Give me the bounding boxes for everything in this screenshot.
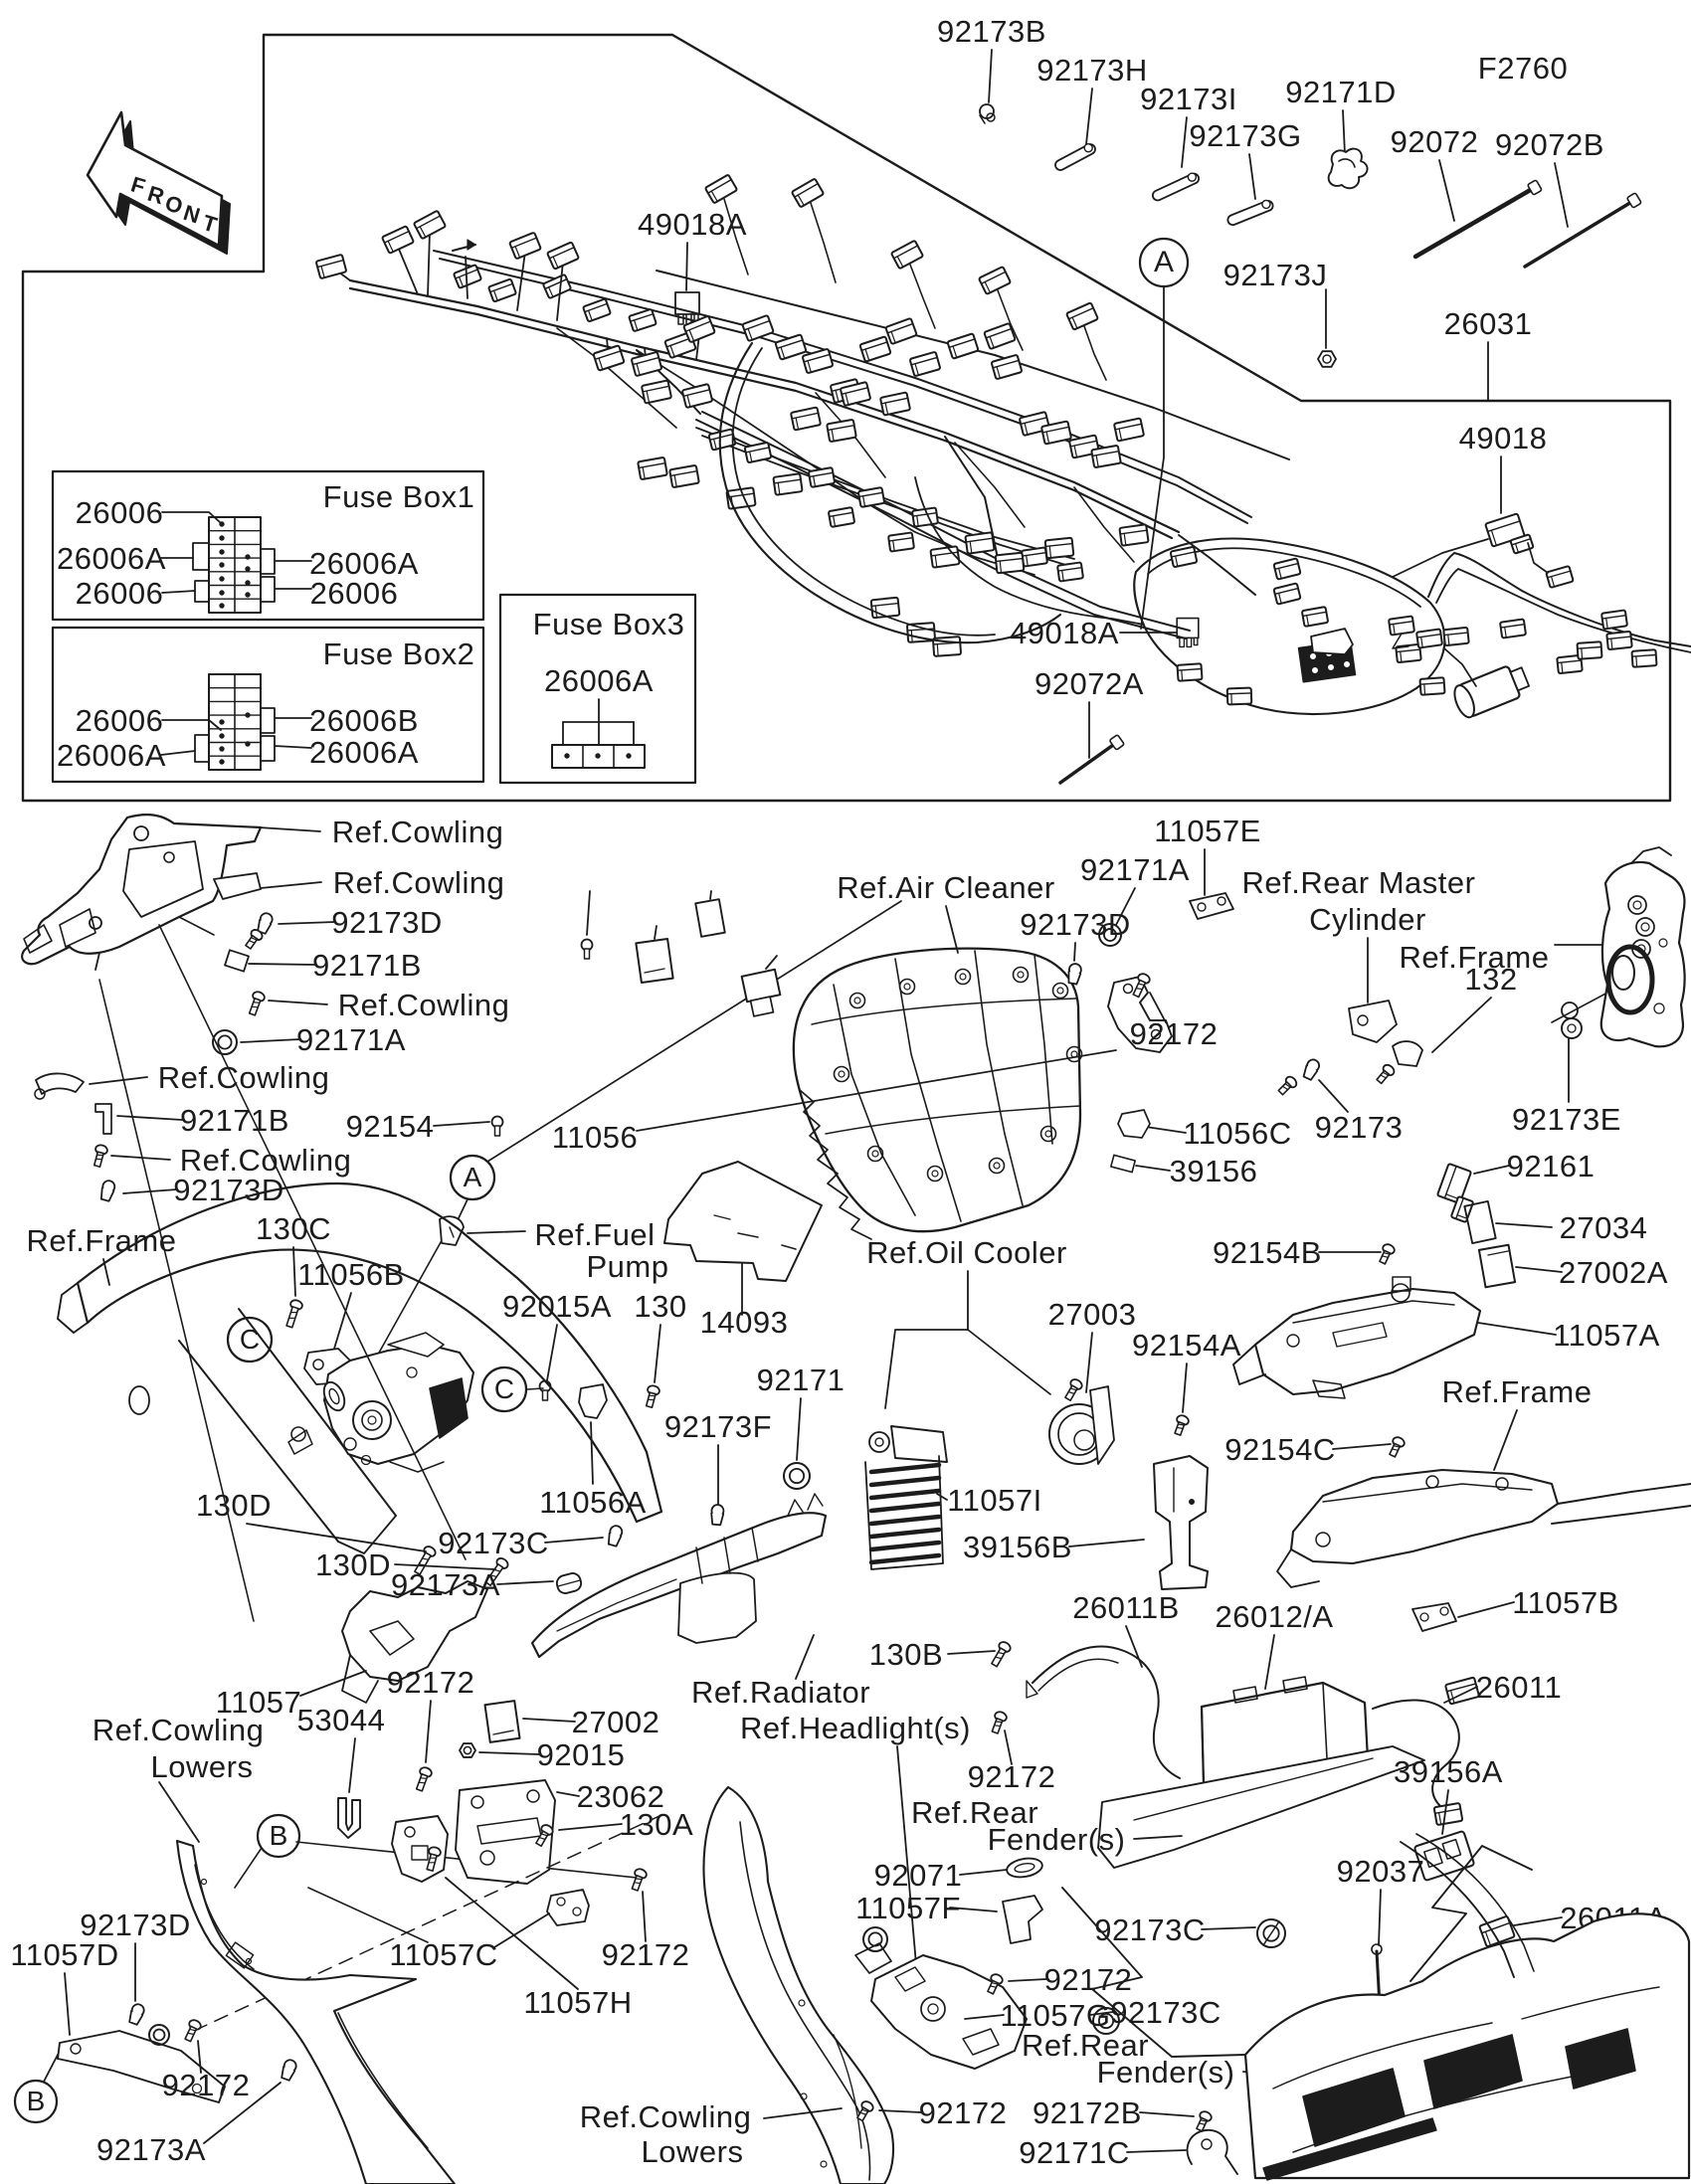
svg-text:11057E: 11057E: [1154, 814, 1261, 848]
svg-text:132: 132: [1464, 962, 1517, 997]
svg-text:27002: 27002: [572, 1705, 660, 1739]
svg-text:26006: 26006: [76, 495, 164, 530]
svg-text:92171D: 92171D: [1285, 75, 1397, 109]
svg-text:11057D: 11057D: [10, 1937, 118, 1972]
svg-text:26011B: 26011B: [1072, 1590, 1180, 1625]
svg-text:92173D: 92173D: [331, 905, 443, 940]
svg-text:Ref.Cowling: Ref.Cowling: [158, 1060, 330, 1095]
svg-text:92173B: 92173B: [937, 14, 1046, 49]
svg-text:11056C: 11056C: [1183, 1116, 1291, 1151]
svg-text:92172: 92172: [1130, 1016, 1219, 1051]
svg-text:53044: 53044: [297, 1703, 386, 1737]
svg-text:92173C: 92173C: [438, 1526, 549, 1560]
svg-text:26011: 26011: [1476, 1670, 1562, 1705]
svg-text:Fuse Box3: Fuse Box3: [533, 607, 685, 641]
svg-text:A: A: [464, 1162, 482, 1192]
svg-text:92171A: 92171A: [1080, 852, 1190, 887]
svg-text:92173H: 92173H: [1036, 53, 1148, 88]
svg-text:26006: 26006: [76, 576, 164, 611]
svg-text:92015A: 92015A: [502, 1289, 612, 1324]
svg-text:11057C: 11057C: [389, 1937, 497, 1972]
svg-text:26012/A: 26012/A: [1216, 1599, 1334, 1634]
svg-text:92154B: 92154B: [1213, 1235, 1322, 1270]
svg-text:92072: 92072: [1391, 124, 1479, 159]
svg-text:Pump: Pump: [587, 1249, 669, 1284]
svg-text:92173A: 92173A: [96, 2132, 206, 2167]
svg-text:92173I: 92173I: [1140, 82, 1237, 116]
svg-text:92173G: 92173G: [1189, 118, 1301, 153]
svg-text:92173C: 92173C: [1110, 1995, 1221, 2030]
svg-text:92171A: 92171A: [296, 1022, 406, 1057]
svg-text:27003: 27003: [1048, 1297, 1137, 1332]
svg-text:130D: 130D: [196, 1488, 272, 1523]
svg-text:Fender(s): Fender(s): [988, 1822, 1126, 1857]
svg-text:26006A: 26006A: [309, 735, 419, 770]
svg-text:Ref.Cowling: Ref.Cowling: [580, 2099, 752, 2134]
svg-text:Ref.Air Cleaner: Ref.Air Cleaner: [837, 870, 1054, 905]
svg-text:92173: 92173: [1315, 1110, 1404, 1145]
svg-text:11056: 11056: [552, 1120, 638, 1155]
svg-text:92037: 92037: [1337, 1854, 1425, 1889]
svg-text:92154: 92154: [346, 1109, 435, 1144]
svg-text:92071: 92071: [874, 1858, 963, 1893]
svg-text:A: A: [1154, 246, 1174, 278]
svg-text:26006: 26006: [76, 703, 164, 738]
svg-text:Ref.Cowling: Ref.Cowling: [93, 1713, 265, 1747]
svg-text:92154C: 92154C: [1224, 1432, 1336, 1467]
svg-text:11056B: 11056B: [297, 1257, 405, 1292]
svg-text:Ref.Cowling: Ref.Cowling: [332, 815, 504, 849]
svg-text:Ref.Cowling: Ref.Cowling: [333, 865, 505, 900]
svg-text:Fuse Box2: Fuse Box2: [323, 637, 475, 671]
svg-text:Ref.Headlight(s): Ref.Headlight(s): [740, 1711, 971, 1745]
svg-text:92173A: 92173A: [391, 1567, 500, 1602]
svg-text:Lowers: Lowers: [642, 2134, 744, 2169]
svg-text:92171B: 92171B: [180, 1103, 289, 1138]
svg-text:Ref.Rear Master: Ref.Rear Master: [1242, 865, 1476, 900]
svg-text:26006: 26006: [310, 576, 399, 611]
svg-text:27034: 27034: [1560, 1210, 1648, 1245]
svg-text:Ref.Cowling: Ref.Cowling: [338, 988, 510, 1022]
svg-text:26006A: 26006A: [544, 663, 654, 698]
svg-text:Fuse Box1: Fuse Box1: [323, 479, 475, 514]
svg-text:14093: 14093: [700, 1305, 789, 1340]
svg-text:11057F: 11057F: [855, 1891, 961, 1925]
svg-text:Ref.Radiator: Ref.Radiator: [691, 1675, 870, 1710]
svg-text:92171B: 92171B: [312, 948, 422, 983]
svg-text:C: C: [494, 1373, 514, 1404]
svg-text:Ref.Fuel: Ref.Fuel: [534, 1217, 655, 1252]
svg-text:11057H: 11057H: [523, 1985, 632, 2020]
svg-text:26006A: 26006A: [57, 541, 166, 576]
svg-text:Cylinder: Cylinder: [1309, 902, 1426, 937]
svg-text:130B: 130B: [869, 1637, 943, 1672]
svg-text:F2760: F2760: [1478, 51, 1568, 86]
svg-text:B: B: [270, 1820, 288, 1851]
svg-text:27002A: 27002A: [1559, 1255, 1668, 1290]
svg-text:92072B: 92072B: [1495, 127, 1604, 162]
svg-text:26006A: 26006A: [57, 738, 166, 773]
svg-text:39156B: 39156B: [963, 1530, 1072, 1564]
svg-text:92173J: 92173J: [1223, 258, 1328, 292]
svg-text:Ref.Frame: Ref.Frame: [27, 1223, 177, 1258]
svg-text:39156: 39156: [1170, 1154, 1258, 1188]
svg-text:92172: 92172: [1044, 1962, 1133, 1997]
svg-text:Fender(s): Fender(s): [1097, 2055, 1235, 2090]
svg-text:B: B: [27, 2086, 46, 2116]
svg-text:39156A: 39156A: [1394, 1754, 1503, 1789]
svg-text:92172: 92172: [387, 1665, 475, 1700]
svg-text:49018: 49018: [1459, 421, 1548, 455]
svg-text:49018A: 49018A: [638, 207, 747, 242]
svg-text:92171C: 92171C: [1019, 2135, 1130, 2170]
svg-text:92015: 92015: [537, 1737, 626, 1772]
svg-text:130A: 130A: [620, 1807, 693, 1842]
svg-text:Ref.Oil Cooler: Ref.Oil Cooler: [866, 1235, 1067, 1270]
svg-text:92173E: 92173E: [1512, 1102, 1621, 1137]
svg-text:Lowers: Lowers: [151, 1749, 254, 1784]
svg-text:92171: 92171: [757, 1363, 845, 1397]
svg-text:92173D: 92173D: [1020, 907, 1131, 942]
svg-text:92172: 92172: [602, 1937, 690, 1972]
svg-text:92161: 92161: [1507, 1149, 1596, 1183]
svg-text:C: C: [240, 1324, 260, 1355]
svg-text:11057B: 11057B: [1512, 1585, 1619, 1620]
svg-text:11057A: 11057A: [1553, 1318, 1660, 1353]
svg-text:92172B: 92172B: [1033, 2095, 1142, 2130]
svg-text:92154A: 92154A: [1132, 1328, 1241, 1363]
svg-text:26031: 26031: [1444, 306, 1533, 341]
svg-text:Ref.Frame: Ref.Frame: [1442, 1374, 1593, 1409]
svg-text:11057I: 11057I: [947, 1483, 1042, 1518]
svg-text:92072A: 92072A: [1034, 666, 1144, 701]
svg-text:130: 130: [634, 1289, 686, 1324]
svg-text:130C: 130C: [256, 1211, 331, 1246]
svg-text:26006B: 26006B: [309, 703, 419, 738]
svg-text:92172: 92172: [919, 2095, 1008, 2130]
svg-text:130D: 130D: [315, 1547, 391, 1582]
svg-text:11056A: 11056A: [539, 1485, 647, 1520]
svg-text:92173F: 92173F: [664, 1409, 772, 1444]
svg-text:92172: 92172: [162, 2068, 251, 2102]
